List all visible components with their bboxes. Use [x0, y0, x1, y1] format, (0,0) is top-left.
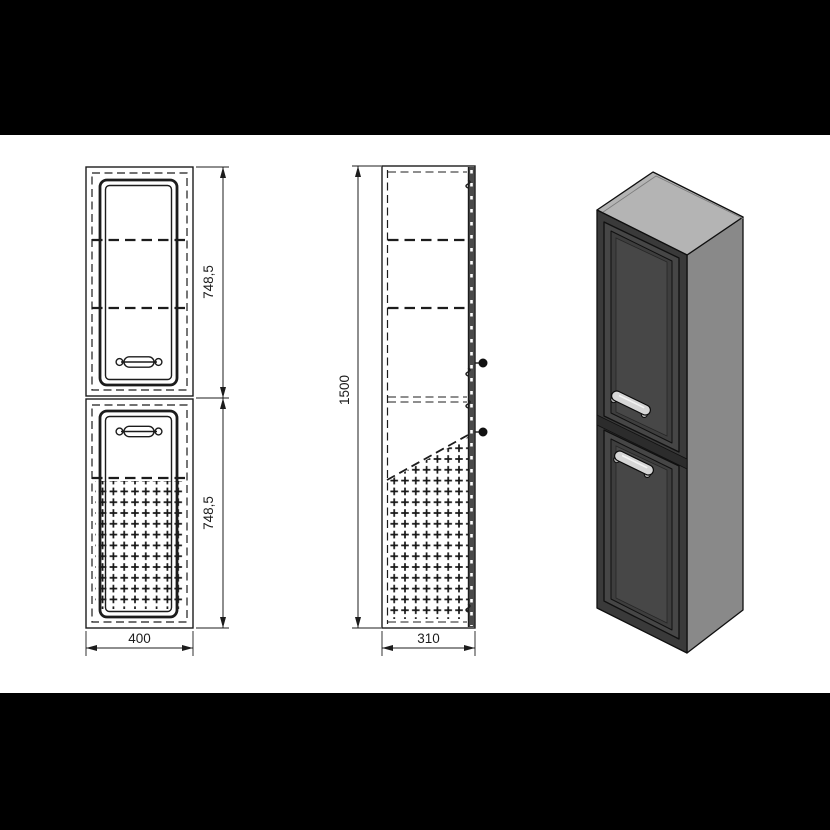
dim-upper-section-height: 748,5: [201, 265, 216, 299]
dim-lower-section-height: 748,5: [201, 496, 216, 530]
side-crosshatch-basket-area: [388, 437, 468, 619]
side-upper-knob: [475, 359, 487, 367]
iso-side-face: [687, 217, 743, 653]
product-drawing-canvas: 748,5 748,5 400 1500 310: [0, 0, 830, 830]
dim-depth: 310: [417, 631, 440, 646]
front-crosshatch-basket-area: [95, 481, 184, 609]
dim-total-height: 1500: [337, 375, 352, 405]
front-view: [86, 167, 193, 628]
technical-drawing-svg: 748,5 748,5 400 1500 310: [0, 0, 830, 830]
iso-upper-door: [604, 222, 679, 452]
dim-width: 400: [128, 631, 151, 646]
front-upper-handle: [116, 357, 162, 367]
front-upper-door-frame: [100, 180, 177, 385]
front-lower-handle: [116, 426, 162, 436]
front-upper-door-panel: [106, 186, 172, 380]
isometric-view: [597, 172, 744, 653]
side-view: [382, 166, 487, 628]
side-lower-knob: [475, 428, 487, 436]
